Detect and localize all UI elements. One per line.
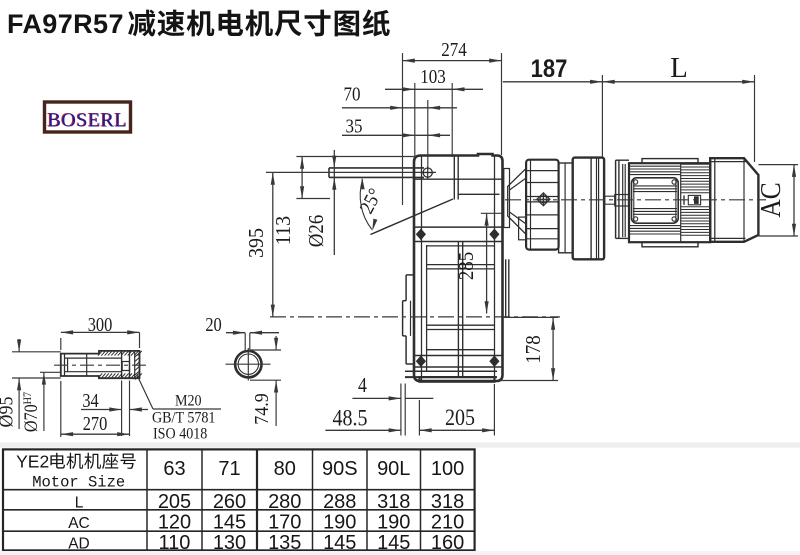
- svg-text:AD: AD: [68, 535, 90, 552]
- svg-text:120: 120: [158, 511, 191, 533]
- svg-text:113: 113: [273, 216, 296, 245]
- svg-text:170: 170: [268, 511, 301, 533]
- svg-text:BOSERL: BOSERL: [48, 110, 128, 132]
- svg-text:178: 178: [522, 335, 545, 363]
- svg-text:270: 270: [83, 412, 108, 434]
- svg-text:Ø70H7: Ø70H7: [20, 391, 42, 432]
- svg-text:FA97R57: FA97R57: [7, 9, 124, 39]
- svg-text:35: 35: [346, 115, 363, 138]
- svg-text:135: 135: [268, 532, 301, 554]
- svg-text:190: 190: [323, 511, 356, 533]
- svg-text:34: 34: [82, 389, 98, 411]
- svg-text:90S: 90S: [322, 458, 358, 480]
- svg-text:205: 205: [445, 405, 475, 431]
- svg-text:274: 274: [441, 39, 466, 62]
- svg-text:100: 100: [431, 458, 464, 480]
- svg-text:103: 103: [420, 66, 445, 89]
- svg-text:Motor Size: Motor Size: [32, 473, 125, 491]
- svg-text:80: 80: [274, 458, 296, 480]
- svg-text:GB/T 5781: GB/T 5781: [152, 410, 215, 427]
- svg-text:48.5: 48.5: [333, 405, 368, 431]
- svg-text:71: 71: [218, 458, 240, 480]
- svg-text:145: 145: [323, 532, 356, 554]
- svg-text:70: 70: [344, 83, 361, 106]
- svg-text:90L: 90L: [377, 458, 410, 480]
- svg-text:395: 395: [246, 228, 269, 258]
- svg-text:318: 318: [431, 491, 464, 513]
- svg-text:130: 130: [213, 532, 246, 554]
- svg-text:190: 190: [377, 511, 410, 533]
- svg-text:63: 63: [163, 458, 185, 480]
- svg-text:Ø95: Ø95: [0, 397, 18, 428]
- svg-text:110: 110: [159, 532, 191, 554]
- svg-text:74.9: 74.9: [251, 393, 273, 424]
- svg-text:260: 260: [213, 491, 246, 513]
- svg-text:187: 187: [531, 55, 568, 83]
- svg-text:4: 4: [358, 375, 367, 398]
- svg-text:Ø26: Ø26: [305, 215, 328, 248]
- svg-text:20: 20: [205, 313, 221, 335]
- svg-text:M20: M20: [175, 393, 202, 410]
- svg-text:AC: AC: [755, 182, 787, 217]
- svg-text:318: 318: [377, 491, 410, 513]
- svg-text:145: 145: [377, 532, 410, 554]
- svg-text:300: 300: [88, 313, 113, 335]
- svg-text:145: 145: [213, 511, 246, 533]
- svg-text:ISO 4018: ISO 4018: [153, 426, 207, 443]
- svg-text:L: L: [75, 495, 84, 512]
- svg-text:288: 288: [323, 491, 356, 513]
- svg-text:AC: AC: [68, 515, 90, 532]
- svg-text:L: L: [670, 52, 688, 84]
- svg-text:160: 160: [431, 532, 464, 554]
- svg-text:205: 205: [158, 491, 191, 513]
- svg-text:210: 210: [431, 511, 464, 533]
- svg-text:285: 285: [455, 252, 478, 280]
- svg-text:280: 280: [268, 491, 301, 513]
- svg-text:YE2: YE2: [16, 452, 49, 472]
